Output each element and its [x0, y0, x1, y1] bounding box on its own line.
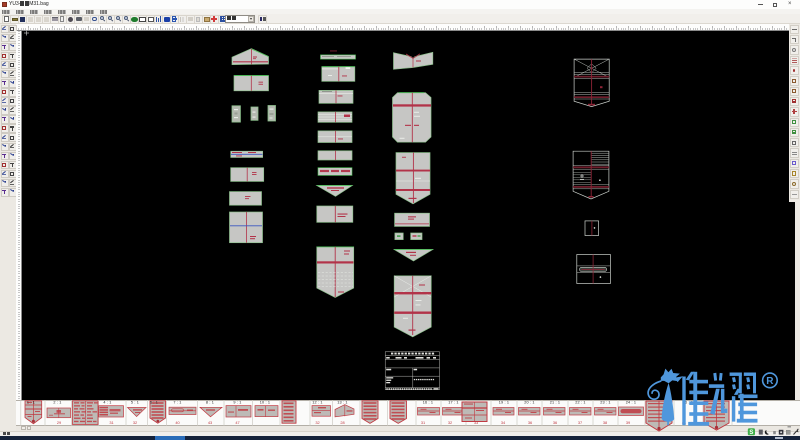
svg-text:31: 31 — [109, 420, 113, 425]
svg-text:12 : 1: 12 : 1 — [312, 401, 322, 405]
svg-text:47: 47 — [235, 420, 239, 425]
svg-text:40: 40 — [175, 420, 180, 425]
svg-text:1 : 1: 1 : 1 — [27, 401, 35, 405]
svg-text:10 : 1: 10 : 1 — [260, 401, 270, 405]
svg-text:13 : 1: 13 : 1 — [337, 401, 347, 405]
svg-text:39: 39 — [626, 420, 630, 425]
svg-text:6 : 1: 6 : 1 — [150, 401, 158, 405]
svg-text:17 : 1: 17 : 1 — [448, 401, 458, 405]
svg-text:32: 32 — [133, 420, 137, 425]
svg-text:28: 28 — [340, 420, 344, 425]
svg-text:R: R — [766, 376, 774, 387]
svg-text:19 : 1: 19 : 1 — [499, 401, 509, 405]
svg-text:16 : 1: 16 : 1 — [423, 401, 433, 405]
svg-text:38: 38 — [603, 420, 607, 425]
svg-text:36: 36 — [528, 420, 532, 425]
svg-text:34: 34 — [501, 420, 506, 425]
svg-text:21 : 1: 21 : 1 — [550, 401, 560, 405]
svg-text:8 : 1: 8 : 1 — [206, 401, 214, 405]
svg-text:7 : 1: 7 : 1 — [173, 401, 181, 405]
svg-text:23 : 1: 23 : 1 — [600, 401, 610, 405]
svg-text:2 : 1: 2 : 1 — [53, 401, 61, 405]
svg-text:22 : 1: 22 : 1 — [575, 401, 585, 405]
svg-text:20 : 1: 20 : 1 — [524, 401, 534, 405]
svg-text:32: 32 — [315, 420, 319, 425]
svg-text:43: 43 — [208, 420, 212, 425]
svg-text:32: 32 — [448, 420, 452, 425]
svg-text:4 : 1: 4 : 1 — [103, 401, 111, 405]
svg-text:9 : 1: 9 : 1 — [233, 401, 241, 405]
svg-text:5 : 1: 5 : 1 — [131, 401, 139, 405]
svg-text:31: 31 — [421, 420, 425, 425]
svg-text:36: 36 — [553, 420, 557, 425]
svg-text:24 : 1: 24 : 1 — [626, 401, 636, 405]
svg-text:37: 37 — [578, 420, 582, 425]
svg-text:33: 33 — [474, 420, 478, 425]
svg-text:S: S — [749, 430, 753, 436]
svg-text:29: 29 — [57, 420, 61, 425]
